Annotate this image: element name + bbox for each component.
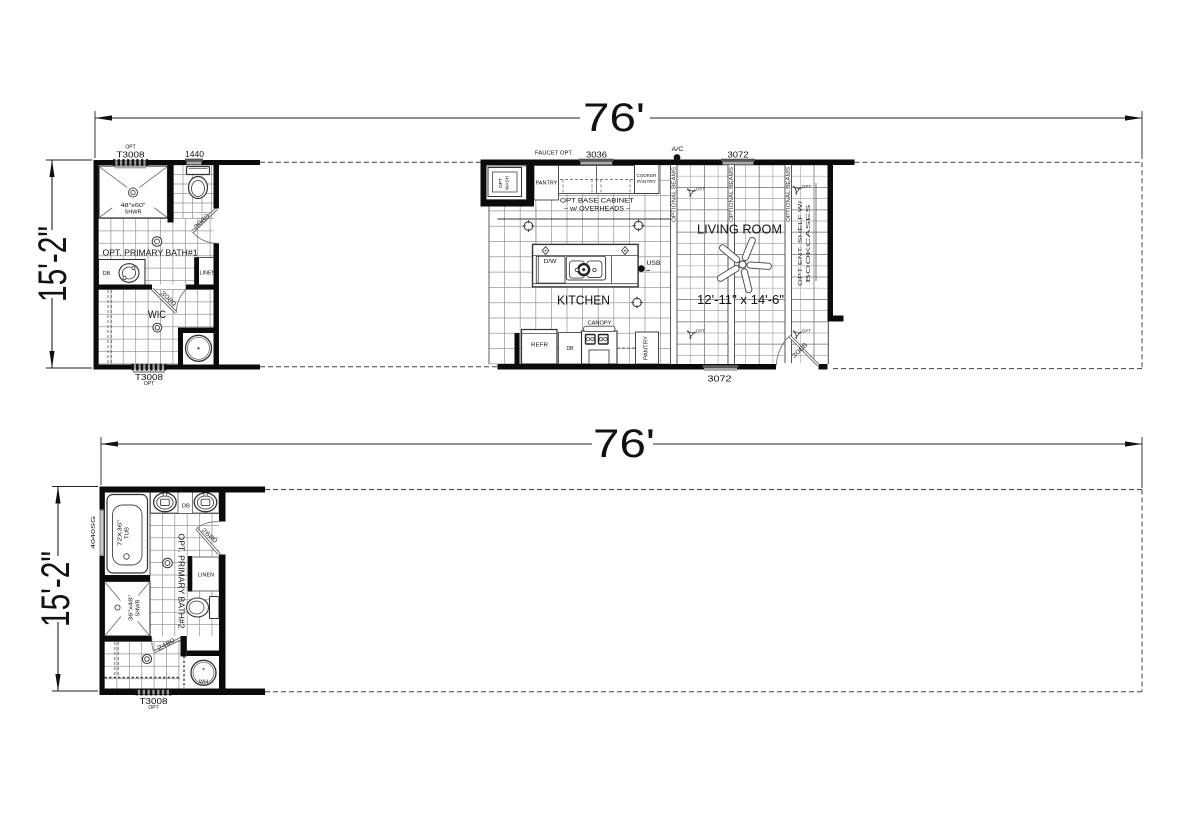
svg-text:3072: 3072 [708, 374, 732, 384]
svg-text:LINEN: LINEN [200, 271, 216, 277]
svg-text:CANOPY: CANOPY [588, 321, 612, 327]
svg-text:COOKER: COOKER [637, 173, 658, 179]
svg-text:WASH: WASH [505, 175, 511, 190]
svg-text:76': 76' [583, 96, 645, 140]
svg-text:WIC: WIC [148, 309, 166, 321]
svg-text:OPT: OPT [148, 705, 158, 711]
svg-text:WH: WH [199, 680, 208, 686]
svg-text:D/W: D/W [544, 259, 558, 265]
svg-text:76': 76' [593, 422, 655, 466]
svg-text:REFR: REFR [531, 343, 548, 349]
svg-text:36"x48": 36"x48" [129, 595, 135, 621]
svg-text:TUB: TUB [125, 526, 131, 539]
svg-text:DB: DB [567, 346, 575, 352]
svg-text:DB: DB [103, 271, 111, 277]
svg-text:OPT. PRIMARY BATH#2: OPT. PRIMARY BATH#2 [177, 534, 187, 629]
svg-text:DB: DB [182, 503, 190, 509]
svg-text:48"x60": 48"x60" [121, 203, 146, 209]
svg-text:A/C: A/C [672, 147, 685, 153]
svg-text:PANTRY: PANTRY [637, 179, 657, 185]
svg-text:12'-11" x 14'-6": 12'-11" x 14'-6" [697, 293, 784, 307]
svg-text:– w/ OVERHEADS –: – w/ OVERHEADS – [564, 206, 630, 213]
svg-text:PANTRY: PANTRY [536, 181, 559, 187]
svg-text:OPT ENT. SHELF W/: OPT ENT. SHELF W/ [798, 200, 804, 286]
svg-text:BOOKCASES: BOOKCASES [806, 204, 812, 283]
svg-text:OPTIONAL BEAMS: OPTIONAL BEAMS [786, 166, 792, 222]
svg-text:KITCHEN: KITCHEN [557, 293, 610, 308]
svg-text:OPT: OPT [498, 178, 504, 188]
svg-text:T3008: T3008 [117, 150, 145, 160]
svg-text:OPT: OPT [696, 187, 706, 192]
svg-text:OPT: OPT [696, 329, 706, 334]
svg-text:15'-2": 15'-2" [31, 226, 75, 302]
svg-text:LINEN: LINEN [198, 573, 214, 579]
svg-text:FAUCET OPT.: FAUCET OPT. [535, 151, 573, 157]
svg-text:15'-2": 15'-2" [34, 551, 78, 627]
svg-text:OPTIONAL BEAMS: OPTIONAL BEAMS [672, 166, 678, 222]
svg-text:SHWR: SHWR [136, 599, 142, 616]
svg-text:72X36": 72X36" [118, 520, 124, 546]
svg-text:SHWR: SHWR [125, 210, 142, 216]
svg-text:PANTRY: PANTRY [644, 335, 650, 360]
svg-text:OPTIONAL BEAMS: OPTIONAL BEAMS [729, 166, 735, 222]
svg-text:OPT: OPT [802, 329, 812, 334]
svg-text:4040SG: 4040SG [91, 516, 97, 549]
svg-text:3036: 3036 [586, 150, 607, 160]
svg-text:LIVING ROOM: LIVING ROOM [697, 222, 782, 237]
svg-text:OPT: OPT [144, 381, 154, 387]
svg-text:OPT: OPT [802, 184, 812, 189]
svg-text:3072: 3072 [728, 150, 749, 160]
svg-text:OPT BASE CABINET: OPT BASE CABINET [560, 198, 634, 205]
svg-text:OPT. PRIMARY BATH#1: OPT. PRIMARY BATH#1 [103, 248, 198, 258]
svg-text:USB: USB [647, 261, 661, 267]
svg-text:1440: 1440 [185, 150, 205, 159]
